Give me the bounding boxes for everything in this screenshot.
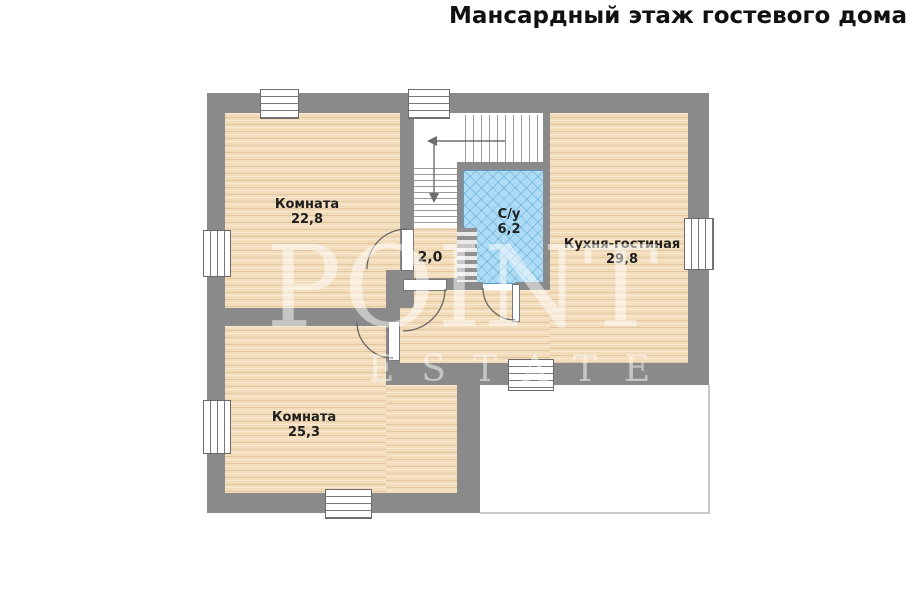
wall-bedrooms-divider bbox=[207, 308, 400, 326]
shaft-hatch bbox=[457, 228, 477, 282]
window bbox=[325, 489, 372, 519]
window bbox=[203, 230, 231, 277]
wall-bathroom-south-left bbox=[463, 282, 483, 290]
floor-plan-canvas: Мансардный этаж гостевого дома bbox=[0, 0, 915, 610]
room-label-bedroom-top: Комната 22,8 bbox=[275, 197, 339, 227]
room-name: Кухня-гостиная bbox=[564, 237, 680, 252]
room-name: С/у bbox=[497, 207, 520, 222]
stair-flight-upper bbox=[458, 115, 543, 162]
floor-bedroom-bottom-ext bbox=[386, 385, 457, 493]
window bbox=[508, 359, 554, 391]
door-leaf bbox=[401, 229, 414, 271]
door-leaf bbox=[512, 284, 520, 322]
window bbox=[203, 400, 231, 454]
room-label-hall: 2,0 bbox=[418, 251, 443, 266]
room-label-bedroom-bottom: Комната 25,3 bbox=[272, 410, 336, 440]
room-area: 2,0 bbox=[418, 251, 443, 266]
page-title: Мансардный этаж гостевого дома bbox=[449, 3, 907, 29]
door-leaf bbox=[403, 279, 447, 291]
wall-cutout-left bbox=[457, 385, 480, 493]
room-area: 29,8 bbox=[564, 252, 680, 267]
room-name: Комната bbox=[275, 197, 339, 212]
room-area: 6,2 bbox=[497, 222, 520, 237]
door-leaf bbox=[388, 321, 400, 361]
room-area: 25,3 bbox=[272, 425, 336, 440]
room-label-kitchen-living: Кухня-гостиная 29,8 bbox=[564, 237, 680, 267]
window bbox=[260, 89, 299, 119]
window bbox=[684, 218, 714, 270]
window bbox=[408, 89, 450, 119]
stair-flight-lower bbox=[414, 163, 457, 228]
room-label-bathroom: С/у 6,2 bbox=[497, 207, 520, 237]
wall-bathroom-top bbox=[457, 162, 550, 170]
room-name: Комната bbox=[272, 410, 336, 425]
wall-bathroom-right bbox=[543, 113, 550, 290]
floor-corridor bbox=[400, 290, 550, 363]
roof-cutout-area bbox=[480, 385, 710, 514]
room-area: 22,8 bbox=[275, 212, 339, 227]
